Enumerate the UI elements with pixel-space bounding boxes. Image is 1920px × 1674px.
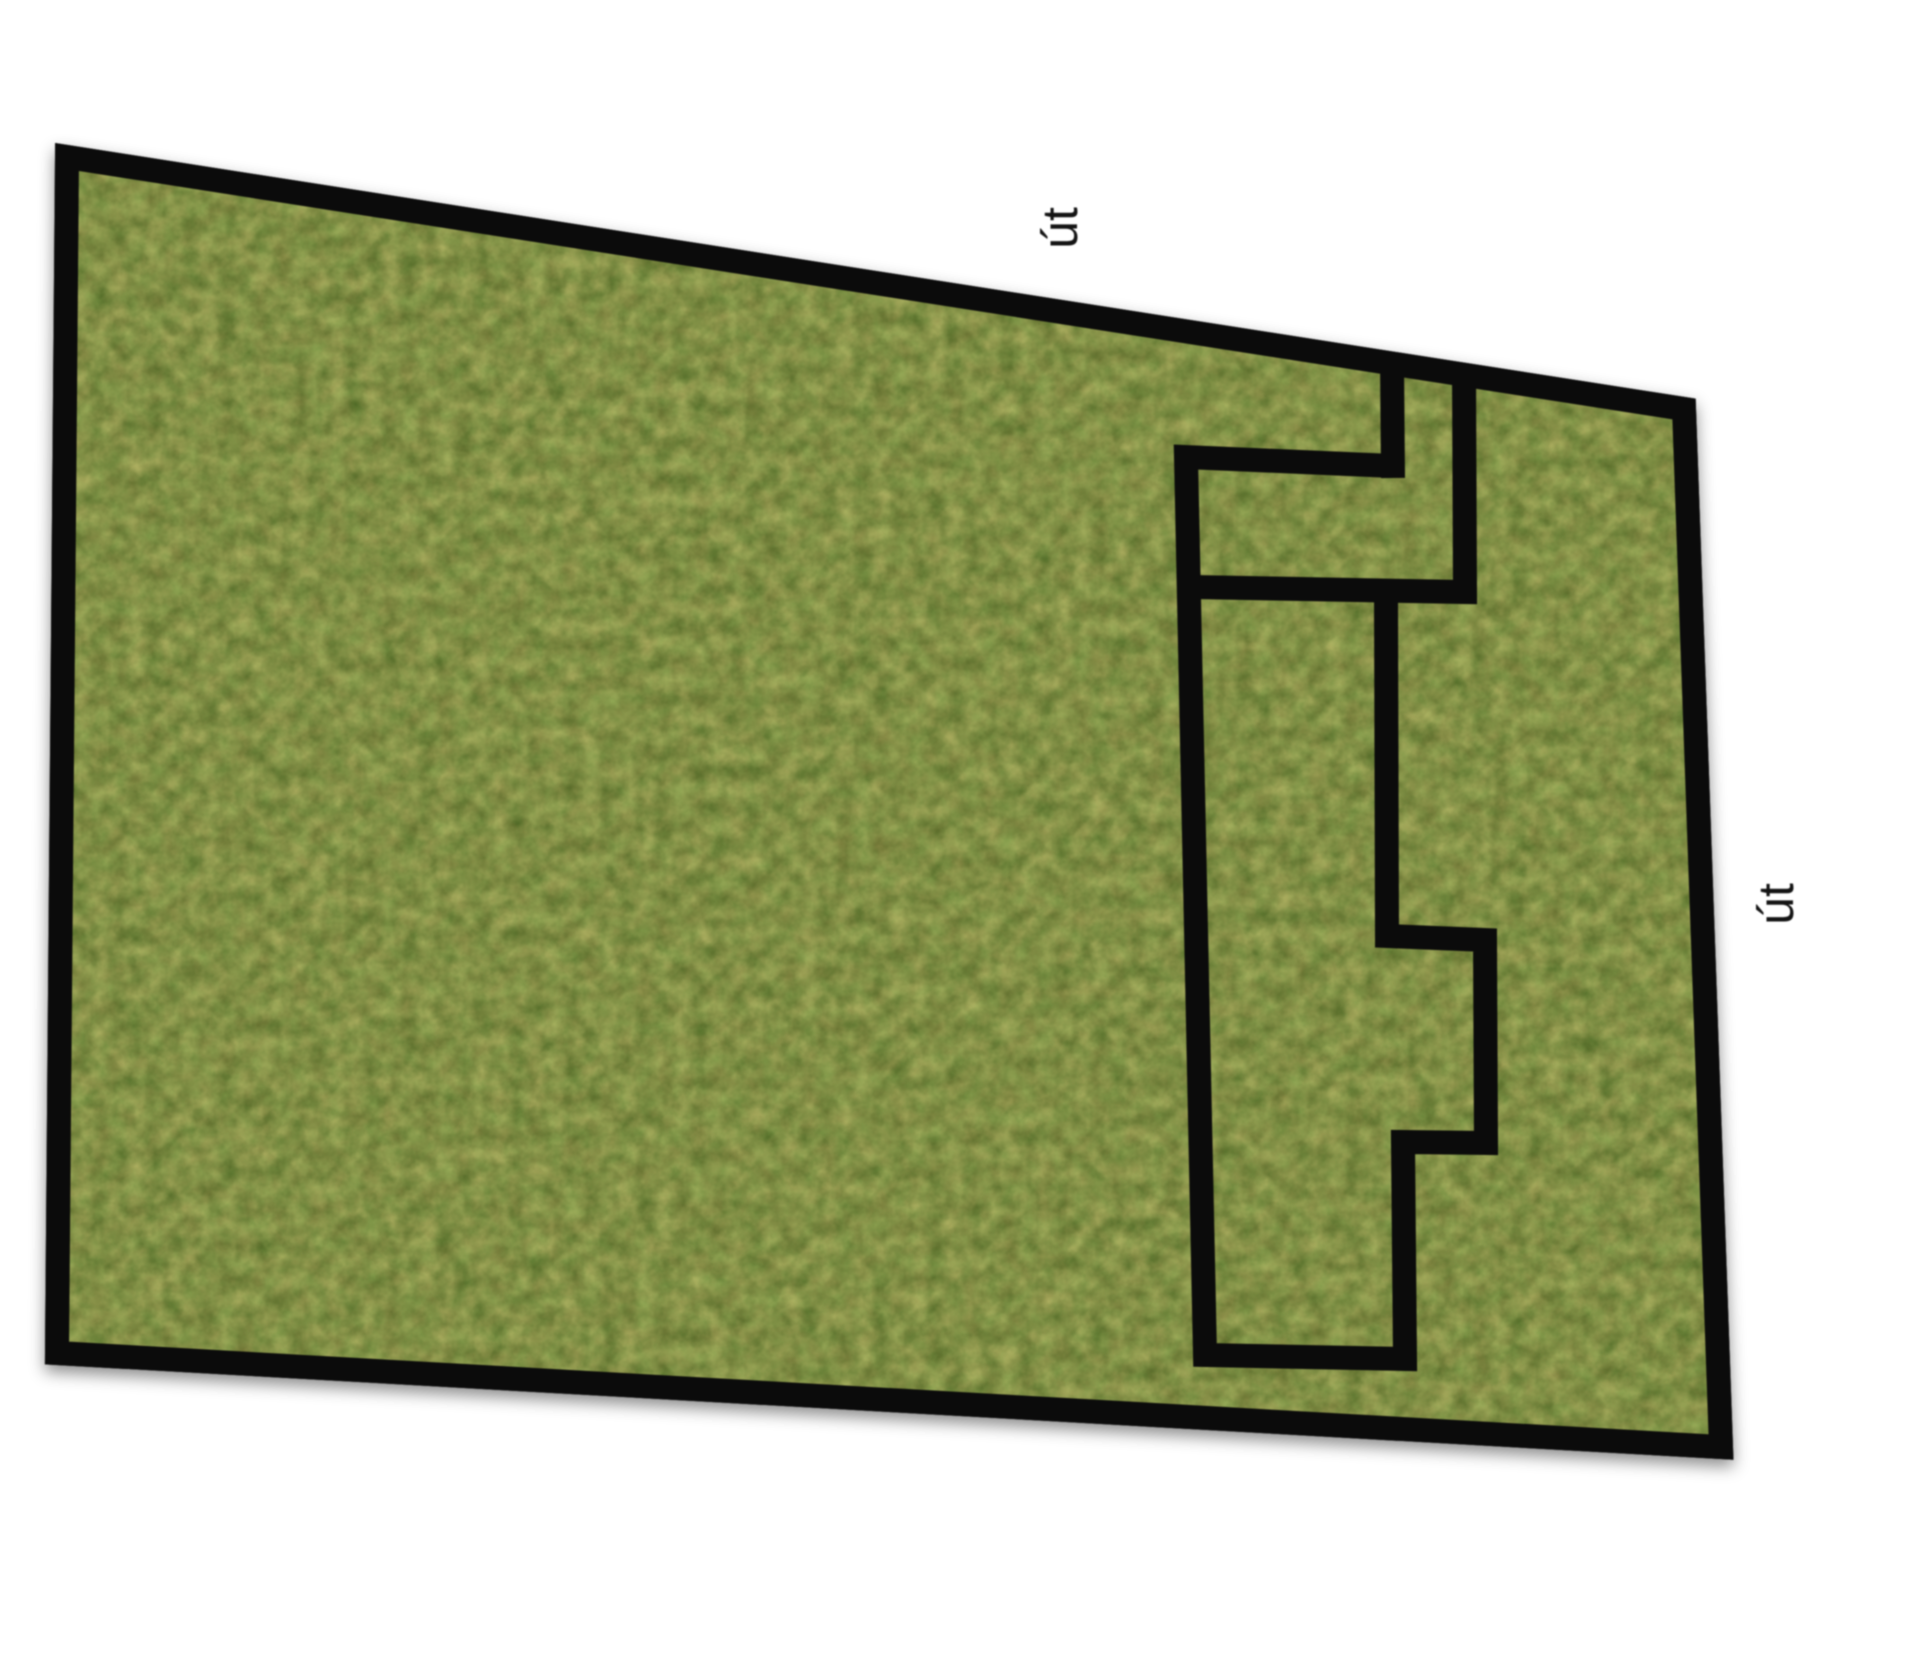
svg-text:út: út: [1748, 883, 1804, 925]
svg-text:út: út: [1032, 207, 1088, 249]
